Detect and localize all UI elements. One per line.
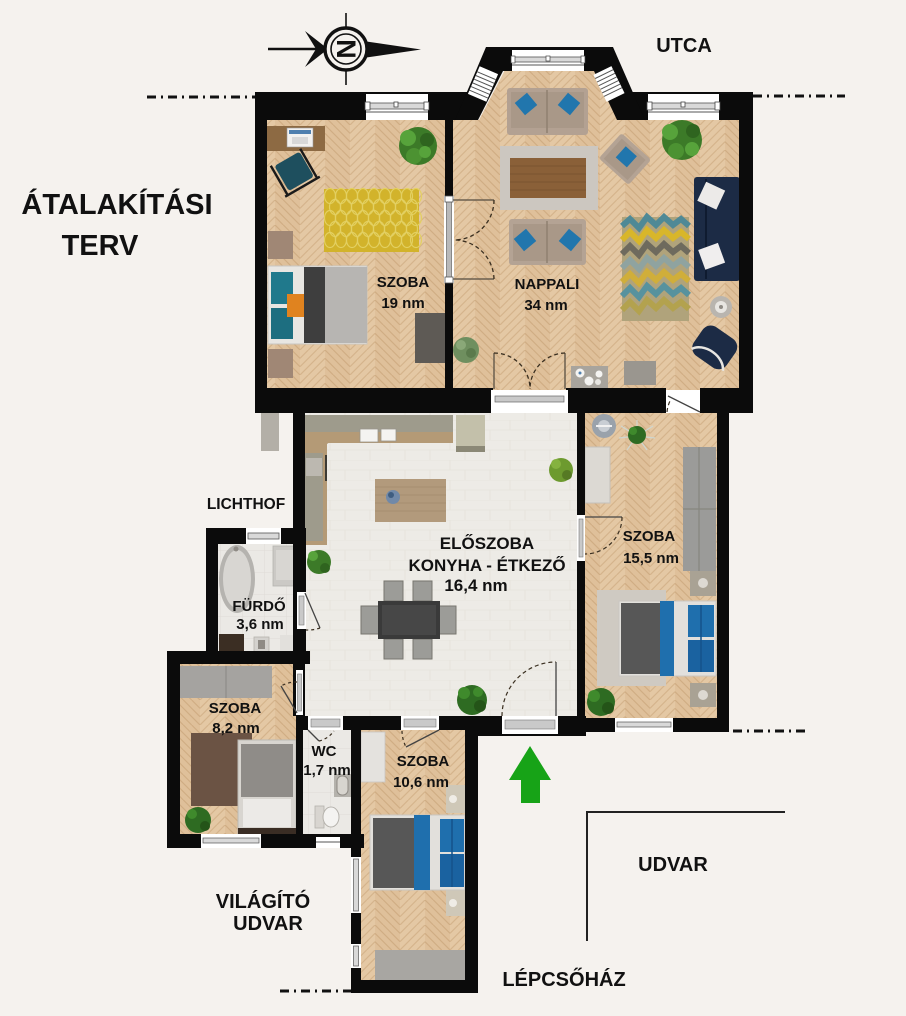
svg-text:WC: WC [312,743,337,760]
svg-text:KONYHA - ÉTKEZŐ: KONYHA - ÉTKEZŐ [408,556,565,575]
svg-text:NAPPALI: NAPPALI [515,276,580,293]
svg-text:SZOBA: SZOBA [623,528,676,545]
svg-text:34 nm: 34 nm [524,297,567,314]
svg-text:1,7 nm: 1,7 nm [303,762,351,779]
svg-text:SZOBA: SZOBA [377,274,430,291]
svg-text:LÉPCSŐHÁZ: LÉPCSŐHÁZ [502,968,625,991]
svg-text:LICHTHOF: LICHTHOF [207,496,285,513]
svg-text:FÜRDŐ: FÜRDŐ [232,597,286,615]
svg-text:15,5 nm: 15,5 nm [623,550,679,567]
svg-text:16,4 nm: 16,4 nm [444,576,507,595]
svg-text:SZOBA: SZOBA [397,753,450,770]
svg-text:VILÁGÍTÓ: VILÁGÍTÓ [216,889,310,913]
svg-text:TERV: TERV [62,230,139,262]
svg-text:19 nm: 19 nm [381,295,424,312]
svg-text:3,6 nm: 3,6 nm [236,616,284,633]
svg-text:UDVAR: UDVAR [638,854,708,876]
svg-text:ELŐSZOBA: ELŐSZOBA [440,534,534,553]
svg-text:N: N [331,39,361,59]
svg-text:SZOBA: SZOBA [209,700,262,717]
svg-text:UTCA: UTCA [656,35,712,57]
svg-text:UDVAR: UDVAR [233,913,303,935]
svg-text:10,6 nm: 10,6 nm [393,774,449,791]
svg-text:8,2 nm: 8,2 nm [212,720,260,737]
svg-text:ÁTALAKÍTÁSI: ÁTALAKÍTÁSI [21,187,212,221]
